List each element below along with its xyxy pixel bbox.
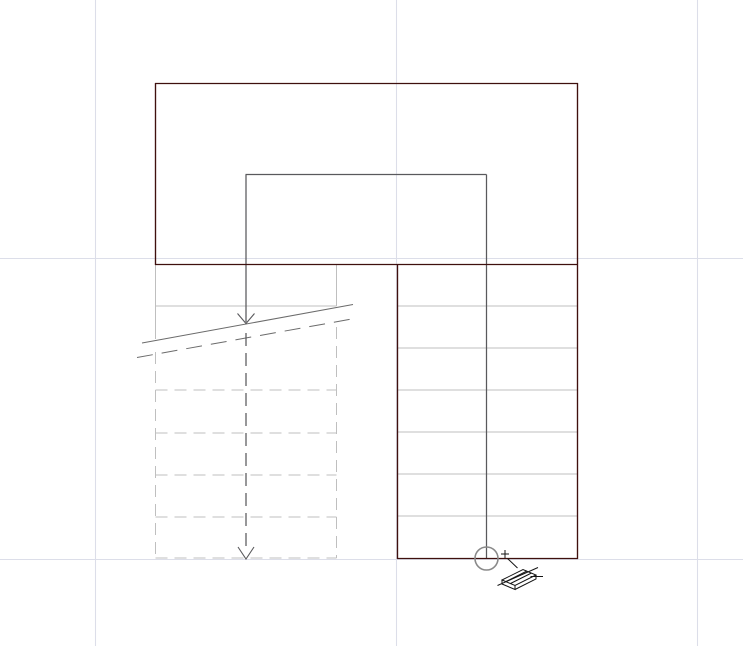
stair-boundary bbox=[155, 83, 578, 559]
stair-run-badge-icon-path bbox=[515, 575, 536, 590]
stair-run-badge-icon-path bbox=[502, 570, 536, 586]
cad-viewport[interactable] bbox=[0, 0, 743, 646]
stair-run-badge-icon bbox=[498, 568, 544, 590]
grid-lines bbox=[0, 0, 743, 646]
drawing-canvas[interactable] bbox=[0, 0, 743, 646]
right-run-treads bbox=[398, 306, 577, 516]
walk-line-solid bbox=[246, 175, 487, 559]
walk-direction-arrows-polyline bbox=[238, 547, 254, 559]
